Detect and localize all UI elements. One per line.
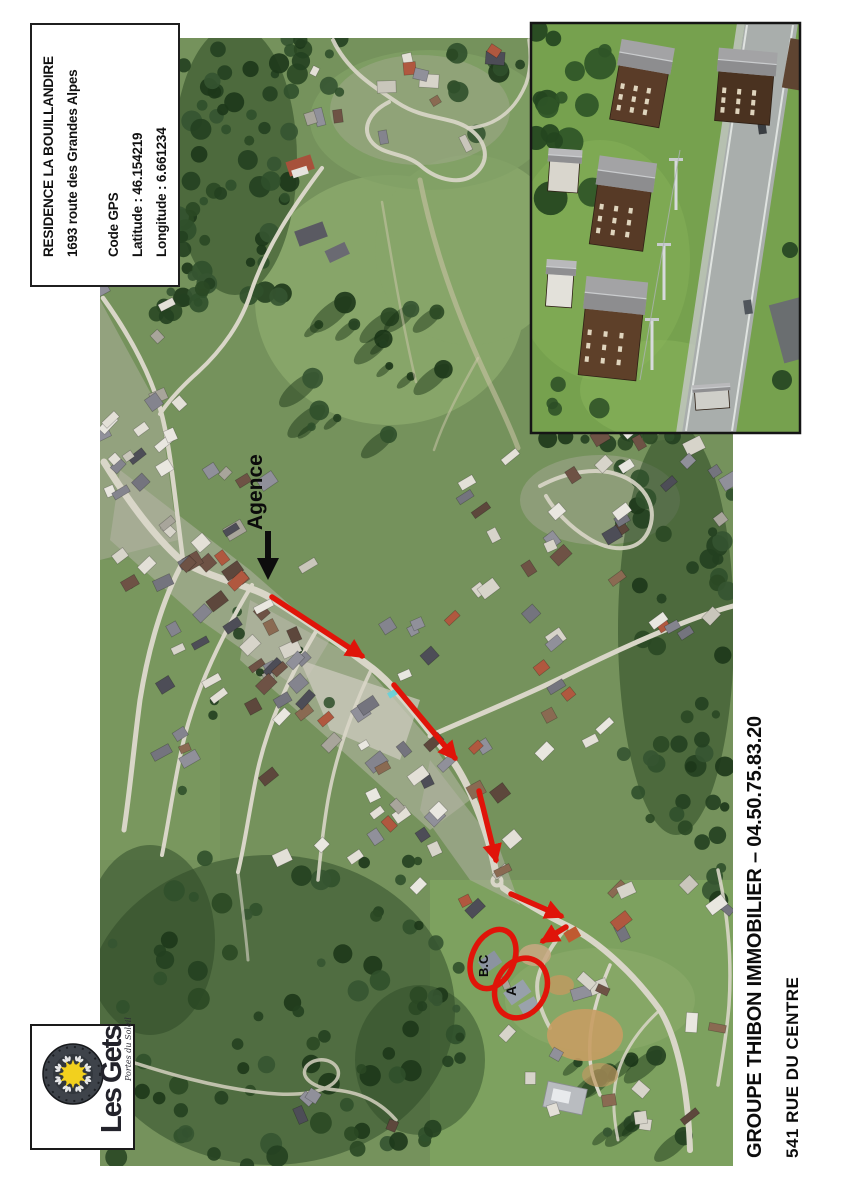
logo-tagline: Portes du Soleil xyxy=(124,1027,133,1081)
les-gets-wordmark: Les Gets Portes du Soleil xyxy=(99,1027,137,1133)
gps-longitude: Longitude : 6.661234 xyxy=(150,25,174,257)
agency-name-phone: GROUPE THIBON IMMOBILIER – 04.50.75.83.2… xyxy=(744,663,767,1158)
marker-a-label: A xyxy=(503,986,519,996)
logo-name: Les Gets xyxy=(99,1027,125,1133)
gps-latitude: Latitude : 46.154219 xyxy=(126,25,150,257)
info-box: RESIDENCE LA BOUILLANDIRE 1693 route des… xyxy=(30,23,180,287)
residence-name: RESIDENCE LA BOUILLANDIRE xyxy=(37,25,61,257)
agence-label: Agence xyxy=(244,454,267,530)
gps-heading: Code GPS xyxy=(102,25,126,257)
document-page: Agence B.C A xyxy=(0,0,848,1200)
residence-photo xyxy=(510,19,817,440)
agency-address: 541 RUE DU CENTRE xyxy=(783,663,803,1158)
marker-bc-label: B.C xyxy=(476,954,491,977)
residence-address: 1693 route des Grandes Alpes xyxy=(61,25,85,257)
agency-contact: GROUPE THIBON IMMOBILIER – 04.50.75.83.2… xyxy=(744,663,816,1158)
